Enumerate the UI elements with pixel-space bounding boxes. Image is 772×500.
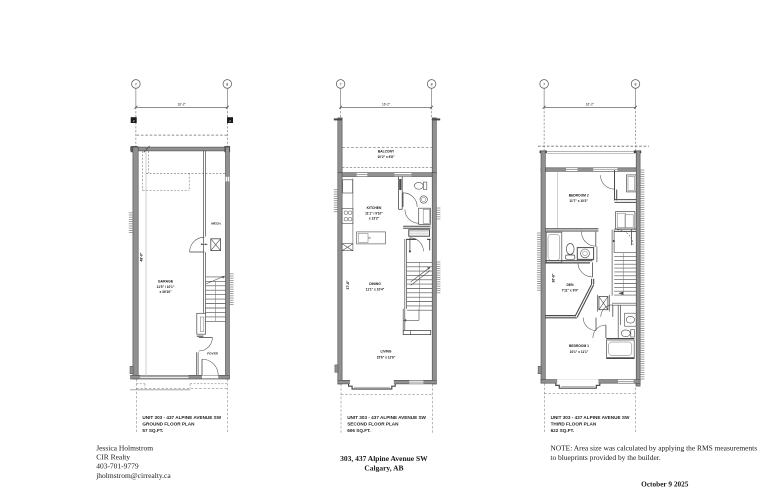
svg-text:15'6" x 12'6": 15'6" x 12'6" — [377, 355, 396, 359]
svg-text:BEDROOM 1: BEDROOM 1 — [569, 344, 589, 348]
svg-text:11'1" x 10'4": 11'1" x 10'4" — [366, 288, 385, 292]
svg-text:to blueprints provided by the: to blueprints provided by the builder. — [550, 453, 660, 462]
svg-text:SECOND FLOOR PLAN: SECOND FLOOR PLAN — [347, 421, 399, 426]
svg-text:11'1" / 9'10": 11'1" / 9'10" — [365, 211, 383, 215]
svg-text:NOTE: Area size was calculated: NOTE: Area size was calculated by applyi… — [550, 443, 757, 452]
svg-text:x 13'2": x 13'2" — [369, 217, 380, 221]
svg-text:606 SQ.FT.: 606 SQ.FT. — [347, 428, 370, 433]
svg-text:48'-0": 48'-0" — [140, 252, 144, 261]
svg-text:CIR Realty: CIR Realty — [96, 453, 130, 462]
svg-text:LIVING: LIVING — [381, 350, 392, 354]
svg-text:Calgary, AB: Calgary, AB — [364, 463, 403, 472]
svg-text:UNIT 303 - 437 ALPINE AVENUE S: UNIT 303 - 437 ALPINE AVENUE SW — [142, 415, 221, 420]
svg-text:Jessica Holmstrom: Jessica Holmstrom — [96, 443, 153, 452]
svg-text:7: 7 — [543, 82, 545, 86]
svg-text:BEDROOM 2: BEDROOM 2 — [569, 193, 589, 197]
svg-text:16'-2": 16'-2" — [382, 103, 390, 107]
svg-text:10'1" x 11'1": 10'1" x 11'1" — [570, 350, 589, 354]
svg-text:BALCONY: BALCONY — [378, 150, 395, 154]
svg-text:jholmstrom@cirrealty.ca: jholmstrom@cirrealty.ca — [95, 471, 171, 480]
svg-text:622 SQ.FT.: 622 SQ.FT. — [551, 428, 574, 433]
svg-text:303, 437 Alpine Avenue SW: 303, 437 Alpine Avenue SW — [340, 454, 428, 463]
svg-text:October 9 2025: October 9 2025 — [641, 479, 689, 488]
svg-text:THIRD FLOOR PLAN: THIRD FLOOR PLAN — [551, 421, 597, 426]
svg-text:8: 8 — [635, 82, 637, 86]
svg-text:DEN: DEN — [567, 283, 575, 287]
svg-text:403-701-9779: 403-701-9779 — [96, 462, 139, 471]
svg-text:x 39'10": x 39'10" — [159, 290, 172, 294]
svg-text:8: 8 — [431, 82, 433, 86]
svg-text:GROUND FLOOR PLAN: GROUND FLOOR PLAN — [142, 421, 195, 426]
svg-text:7: 7 — [135, 82, 137, 86]
svg-text:16'-2": 16'-2" — [178, 103, 186, 107]
svg-text:37'-8": 37'-8" — [346, 280, 350, 289]
svg-text:8: 8 — [226, 82, 228, 86]
svg-text:16'-2": 16'-2" — [586, 103, 594, 107]
svg-text:FOYER: FOYER — [207, 352, 218, 356]
svg-text:DINING: DINING — [369, 282, 381, 286]
svg-text:11'5" / 10'1": 11'5" / 10'1" — [157, 285, 175, 289]
svg-text:10'2" x 6'8": 10'2" x 6'8" — [378, 155, 395, 159]
svg-text:7: 7 — [340, 82, 342, 86]
svg-text:MECH.: MECH. — [211, 222, 221, 226]
svg-text:7'11" x 9'9": 7'11" x 9'9" — [562, 289, 579, 293]
svg-text:11'7" x 10'2": 11'7" x 10'2" — [569, 199, 588, 203]
svg-text:57 SQ.FT.: 57 SQ.FT. — [142, 428, 163, 433]
svg-text:KITCHEN: KITCHEN — [367, 206, 382, 210]
svg-text:36'-8": 36'-8" — [552, 273, 556, 282]
svg-text:UNIT 303 - 437 ALPINE AVENUE S: UNIT 303 - 437 ALPINE AVENUE SW — [347, 415, 426, 420]
svg-text:GARAGE: GARAGE — [158, 279, 174, 283]
svg-text:UNIT 303 - 437 ALPINE AVENUE S: UNIT 303 - 437 ALPINE AVENUE SW — [551, 415, 630, 420]
